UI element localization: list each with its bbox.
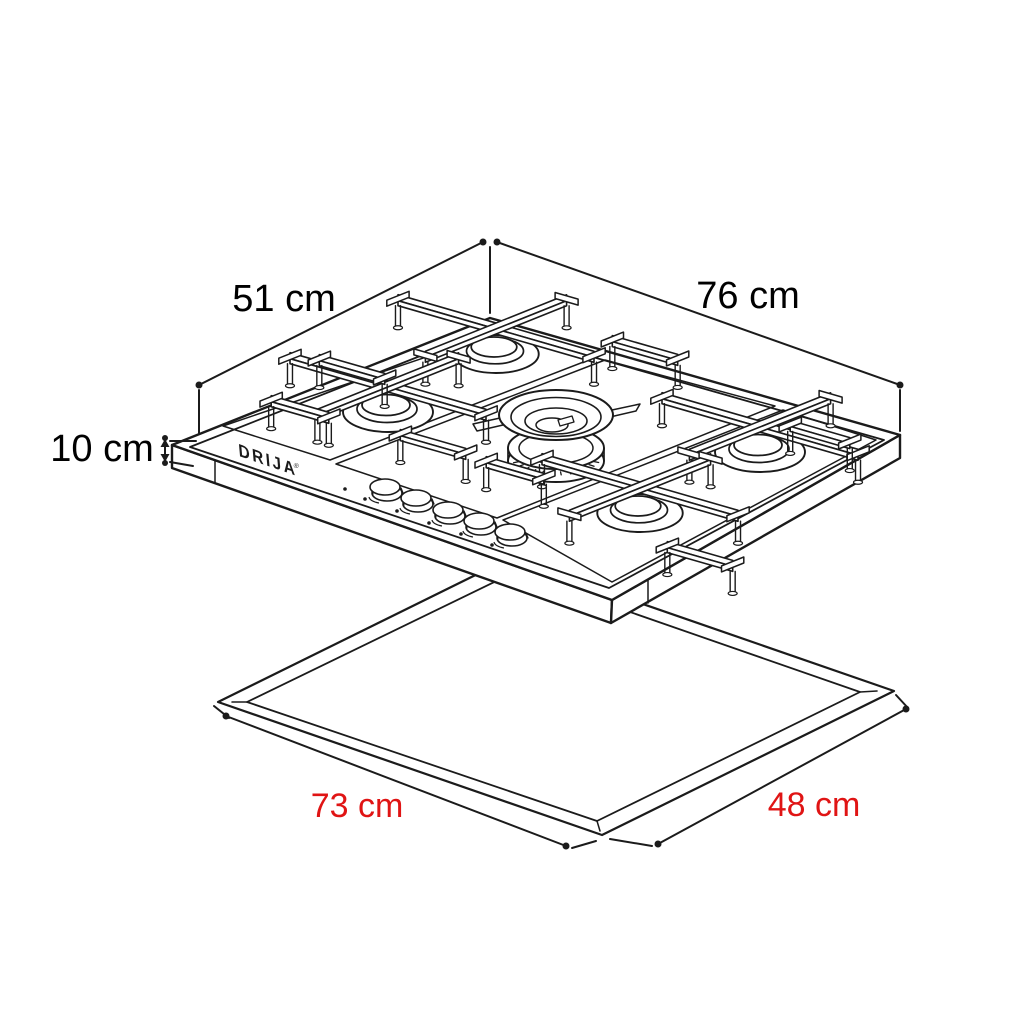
label-cooktop-width: 76 cm [696,275,799,317]
label-cutout-width: 73 cm [311,787,404,825]
label-cooktop-depth: 51 cm [232,278,335,320]
cooktop-dimension-diagram: DRIJA ® [0,0,1024,1024]
label-cooktop-height: 10 cm [50,428,153,470]
label-cutout-depth: 48 cm [768,786,861,824]
diagram-canvas: DRIJA ® [0,0,1024,1024]
cutout-width-dimension-line [226,716,566,846]
